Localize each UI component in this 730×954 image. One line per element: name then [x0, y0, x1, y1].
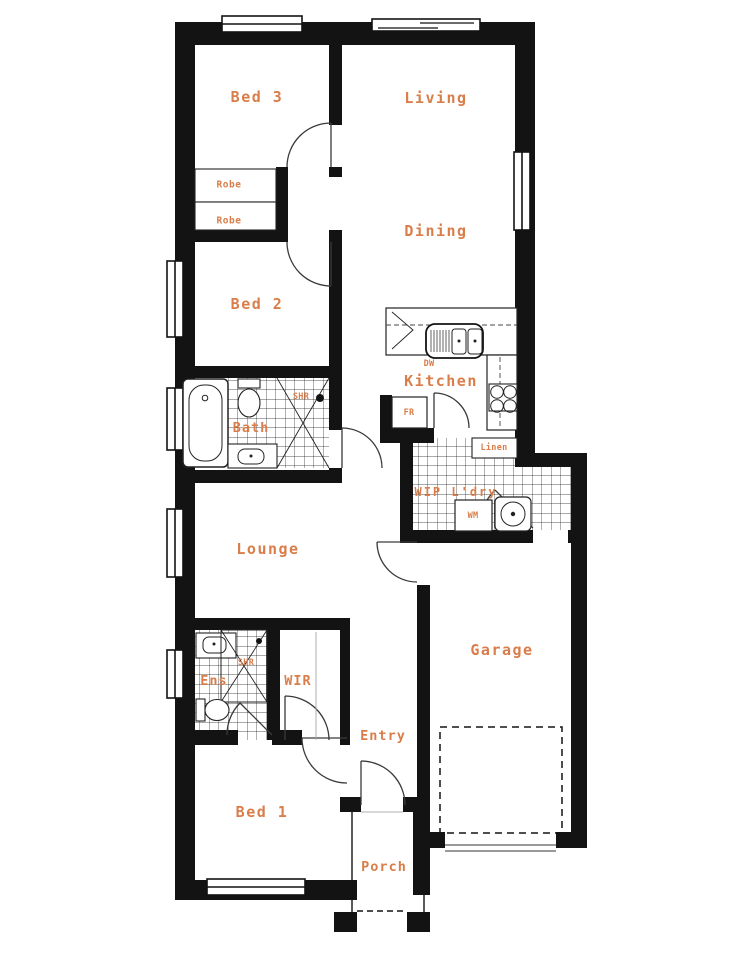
room-label-dining: Dining — [404, 222, 467, 240]
window-bed1-bottom — [207, 879, 305, 895]
wall-robe-right — [276, 167, 288, 242]
toilet-bath — [238, 379, 260, 417]
floor-plan: Bed 3 Living Dining Bed 2 Kitchen Bath L… — [0, 0, 730, 954]
wall-laundry-bottom-b — [568, 530, 587, 543]
wall-bed1-top-b — [272, 730, 302, 745]
fixture-label-shower-ens: SHR — [238, 658, 254, 668]
window-ens-left — [167, 650, 183, 698]
vanity-bath — [228, 444, 277, 468]
fixture-label-fridge: FR — [404, 408, 415, 418]
wall-garage-west — [417, 585, 430, 832]
door-kitchen-laundry — [434, 393, 469, 428]
room-label-bed2: Bed 2 — [231, 295, 284, 313]
wall-bed1-top-a — [175, 730, 238, 745]
wall-exterior-right-upper — [515, 22, 535, 467]
toilet-ensuite — [196, 699, 229, 721]
wall-lounge-top — [175, 470, 342, 483]
fixture-label-robe-top: Robe — [217, 180, 242, 191]
room-label-lounge: Lounge — [236, 540, 299, 558]
room-label-kitchen: Kitchen — [404, 372, 478, 390]
wall-bed3-living — [329, 45, 342, 125]
fixture-label-linen: Linen — [480, 443, 507, 453]
door-hall-garage — [377, 542, 417, 582]
wall-garage-right — [571, 467, 587, 848]
fixture-label-dishwasher: DW — [424, 359, 435, 369]
fixture-label-washing-machine: WM — [468, 511, 479, 521]
bathtub — [183, 379, 228, 467]
porch-pillar-right — [407, 912, 430, 932]
window-bed3-top — [222, 16, 302, 32]
door-bed3 — [287, 123, 331, 167]
window-living-right — [514, 152, 530, 230]
door-front-entry — [361, 761, 405, 805]
room-label-bed1: Bed 1 — [236, 803, 289, 821]
kitchen-sink — [426, 324, 483, 358]
wall-garage-bottom-right — [556, 832, 587, 848]
room-label-ens: Ens — [200, 673, 227, 689]
room-label-entry: Entry — [360, 728, 406, 744]
room-label-living: Living — [404, 89, 467, 107]
room-label-garage: Garage — [470, 641, 533, 659]
window-living-top — [372, 19, 480, 31]
wall-ens-wir-divider — [267, 630, 280, 740]
fixture-label-robe-bottom: Robe — [217, 216, 242, 227]
door-bath — [342, 428, 382, 468]
stove-cooktop — [489, 384, 517, 412]
garage-door — [445, 845, 556, 851]
fixture-label-shower-bath: SHR — [293, 392, 309, 402]
room-label-porch: Porch — [361, 859, 407, 875]
wall-wir-east — [340, 630, 350, 745]
laundry-trough — [495, 497, 531, 531]
wall-front-nib-left — [340, 797, 361, 812]
porch-pillar-left — [334, 912, 357, 932]
wall-exterior-step — [515, 453, 587, 467]
wall-laundry-bottom-a — [400, 530, 533, 543]
room-label-wir: WIR — [284, 673, 311, 689]
window-bed2-left — [167, 261, 183, 337]
wall-bed2-bath — [175, 366, 342, 378]
floor-plan-canvas — [0, 0, 730, 954]
vanity-ensuite — [196, 633, 236, 658]
window-lounge-left — [167, 509, 183, 577]
room-label-bath: Bath — [233, 420, 270, 436]
room-label-bed3: Bed 3 — [231, 88, 284, 106]
wall-bath-east — [329, 378, 342, 430]
door-bed2 — [287, 242, 331, 286]
car-space-dashed — [440, 727, 562, 833]
wall-laundry-west — [400, 428, 413, 543]
wall-hall-stub — [329, 167, 342, 177]
room-label-wip-laundry: WIP L'dry — [414, 485, 497, 499]
garage-details — [440, 727, 562, 851]
wall-ens-wir-top — [175, 618, 350, 630]
window-bath-left — [167, 388, 183, 450]
